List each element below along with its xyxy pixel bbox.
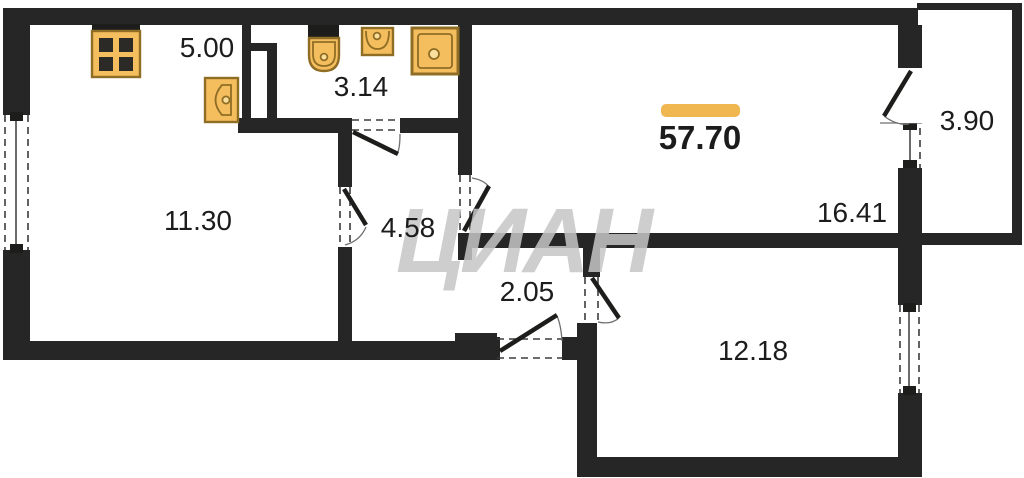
area-label-bedroom: 12.18 [718,335,788,366]
floor-plan-drawing: ЦИАН 5.00 3.14 11.30 4.58 2.05 16.41 3.9… [0,0,1024,478]
wall-segment [898,243,922,305]
toilet-drain [321,54,328,61]
sink-drain [222,96,229,103]
stove-burner [99,38,113,52]
stove-burner [99,57,113,71]
door-swing-arc [598,318,619,323]
stove-burner [119,57,133,71]
wall-segment [3,341,497,360]
window-end-block [903,303,916,312]
wall-segment [338,247,352,343]
washbasin-icon [362,28,393,55]
wall-segment [238,118,352,133]
duct-wall [242,25,251,133]
balcony-parapet [1012,3,1022,245]
total-area-highlight-bar [661,104,740,117]
window-living-room [3,112,30,253]
toilet-tank [308,25,339,38]
area-label-main-room: 16.41 [817,197,887,228]
kitchen-sink-icon [205,78,238,122]
wall-segment [492,337,500,360]
wall-segment [898,393,922,457]
wall-segment [338,123,352,187]
window-end-block [10,112,23,121]
door-swing-arc [397,134,400,154]
door-balcony [884,68,922,124]
wall-segment [458,25,472,175]
wall-segment [562,337,577,360]
door-entrance [497,315,562,360]
wall-segment [400,118,472,133]
door-leaf [353,132,398,154]
balcony-parapet [917,3,1022,10]
total-area: 57.70 [659,104,742,156]
duct-wall [267,43,277,133]
area-label-corridor: 2.05 [500,276,555,307]
area-label-bathroom: 3.14 [334,71,389,102]
floor-plan: ЦИАН 5.00 3.14 11.30 4.58 2.05 16.41 3.9… [0,0,1024,478]
stove-burner [119,38,133,52]
door-swing-arc [557,316,562,341]
washbasin-drain [374,33,381,40]
wall-segment [577,323,597,477]
window-end-block [10,244,23,253]
wall-segment [3,8,30,115]
balcony-parapet [917,233,1022,245]
toilet-icon [308,25,339,71]
window-end-block [903,160,917,168]
wall-segment [898,25,922,68]
area-label-hallway: 4.58 [381,212,436,243]
wall-segment [898,168,922,233]
wall-segment [3,8,918,25]
total-area-label: 57.70 [659,119,742,156]
wall-segment [455,333,497,345]
wall-segment [577,457,922,477]
washing-machine-icon [412,28,458,74]
area-label-living: 11.30 [164,205,232,236]
area-label-balcony: 3.90 [940,105,995,136]
window-bedroom [898,303,922,395]
door-swing-arc [472,178,489,187]
washing-machine-door [429,49,439,59]
duct-wall [242,43,277,51]
area-label-kitchen: 5.00 [180,32,235,63]
stove-icon [92,24,140,77]
door-bathroom [352,117,400,154]
window-end-block [903,386,916,395]
door-living-hall [337,187,366,247]
